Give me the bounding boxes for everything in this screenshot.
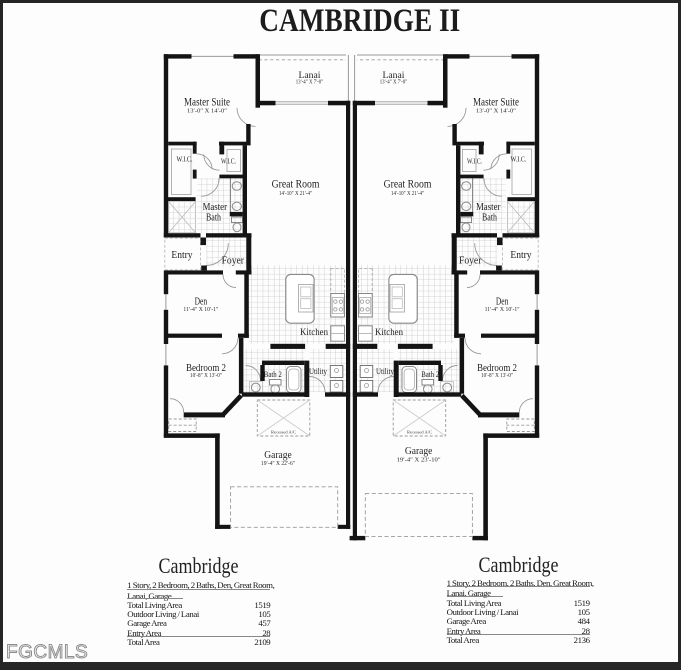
- svg-text:19′-4″ X 23′-10″: 19′-4″ X 23′-10″: [397, 458, 442, 464]
- svg-text:13′-4″ X 7′-0″: 13′-4″ X 7′-0″: [380, 80, 408, 86]
- svg-text:14′-10″ X 21′-4″: 14′-10″ X 21′-4″: [391, 190, 424, 197]
- svg-text:Utility: Utility: [376, 367, 394, 376]
- svg-text:Kitchen: Kitchen: [300, 327, 328, 338]
- svg-text:14′-10″ X 21′-4″: 14′-10″ X 21′-4″: [279, 190, 312, 197]
- svg-text:Utility: Utility: [309, 367, 327, 376]
- svg-text:Recessed A/C: Recessed A/C: [407, 430, 432, 435]
- svg-text:Bath 2: Bath 2: [421, 370, 439, 379]
- svg-text:Great Room: Great Room: [384, 178, 432, 190]
- svg-text:13′-4″ X 7′-0″: 13′-4″ X 7′-0″: [296, 80, 324, 86]
- svg-text:Garage: Garage: [405, 445, 433, 457]
- svg-text:Great Room: Great Room: [272, 178, 320, 190]
- svg-text:Kitchen: Kitchen: [375, 327, 403, 338]
- svg-text:CAMBRIDGE II: CAMBRIDGE II: [259, 3, 460, 39]
- svg-text:Recessed A/C: Recessed A/C: [271, 430, 296, 435]
